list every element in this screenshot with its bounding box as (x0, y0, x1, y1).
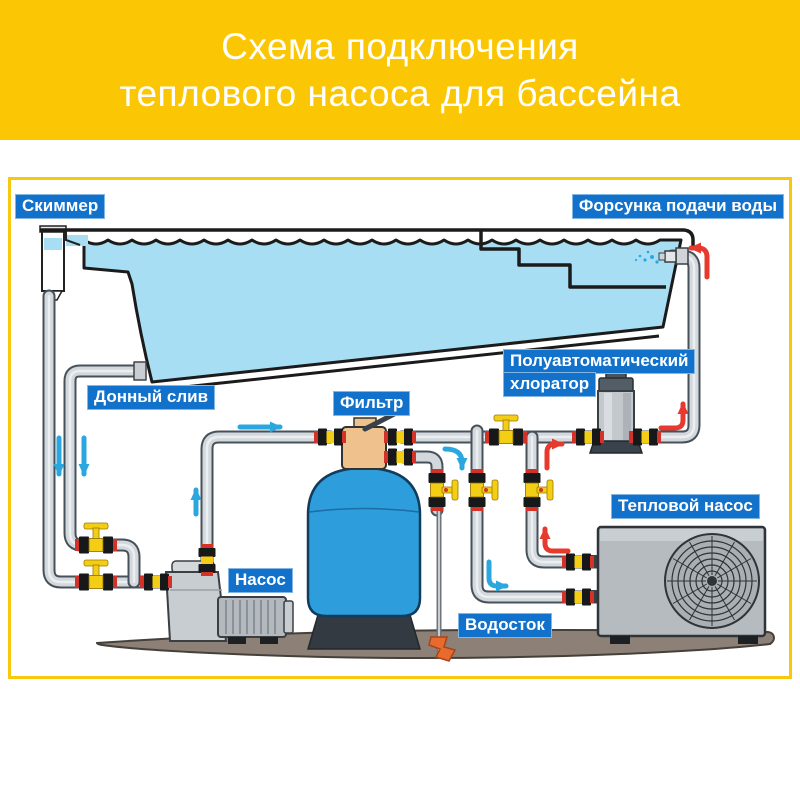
union-filter-left (314, 429, 346, 446)
union-pump-inlet (140, 574, 172, 591)
valve-heat-pump-supply (469, 469, 499, 511)
union-chlorinator-right (629, 429, 661, 446)
fan-grille (665, 534, 759, 628)
union-filter-right-top (384, 429, 416, 446)
heat-pump-return-pipe (532, 437, 600, 562)
valve-waste (429, 469, 459, 511)
valve-bypass (485, 415, 527, 446)
label-heat-pump: Тепловой насос (611, 494, 760, 519)
label-drain: Водосток (458, 613, 552, 638)
pool-heat-pump-scheme: Схема подключения теплового насоса для б… (0, 0, 800, 801)
label-bottom-drain: Донный слив (87, 385, 215, 410)
label-chlorinator-1: Полуавтоматический (503, 349, 695, 374)
heat-pump-unit (590, 527, 765, 644)
arrow-into-heat-pump (489, 562, 506, 586)
arrow-from-heat-pump-up (545, 529, 568, 551)
arrow-to-heat-pump-down (445, 449, 462, 468)
label-skimmer: Скиммер (15, 194, 105, 219)
arrow-riser-up (661, 404, 683, 428)
label-pump: Насос (228, 568, 293, 593)
union-pump-outlet (199, 544, 216, 576)
skimmer-unit (40, 226, 88, 300)
filter-tank (308, 468, 420, 616)
union-heat-pump-bottom (562, 589, 594, 606)
valve-skimmer (75, 560, 117, 591)
union-chlorinator-left (572, 429, 604, 446)
arrow-return-right (547, 444, 562, 468)
label-chlorinator-2: хлоратор (503, 372, 596, 397)
label-inlet-nozzle: Форсунка подачи воды (572, 194, 784, 219)
union-filter-right-bottom (384, 449, 416, 466)
pump-motor (218, 597, 286, 637)
valve-heat-pump-return (524, 469, 554, 511)
union-heat-pump-top (562, 554, 594, 571)
valve-bottom-drain (75, 523, 117, 554)
label-filter: Фильтр (333, 391, 410, 416)
